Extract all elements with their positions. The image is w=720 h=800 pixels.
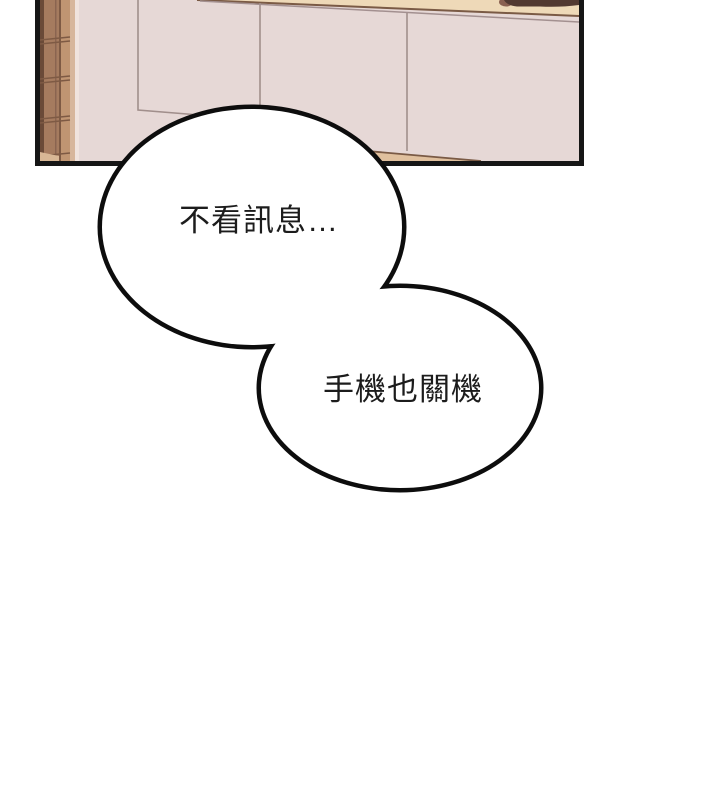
speech-bubble-1-text: 不看訊息… (179, 203, 339, 239)
wood-pillar (40, 0, 79, 161)
speech-bubble-2-text: 手機也關機 (323, 372, 483, 408)
comic-page: 不看訊息… 手機也關機 (0, 0, 720, 800)
